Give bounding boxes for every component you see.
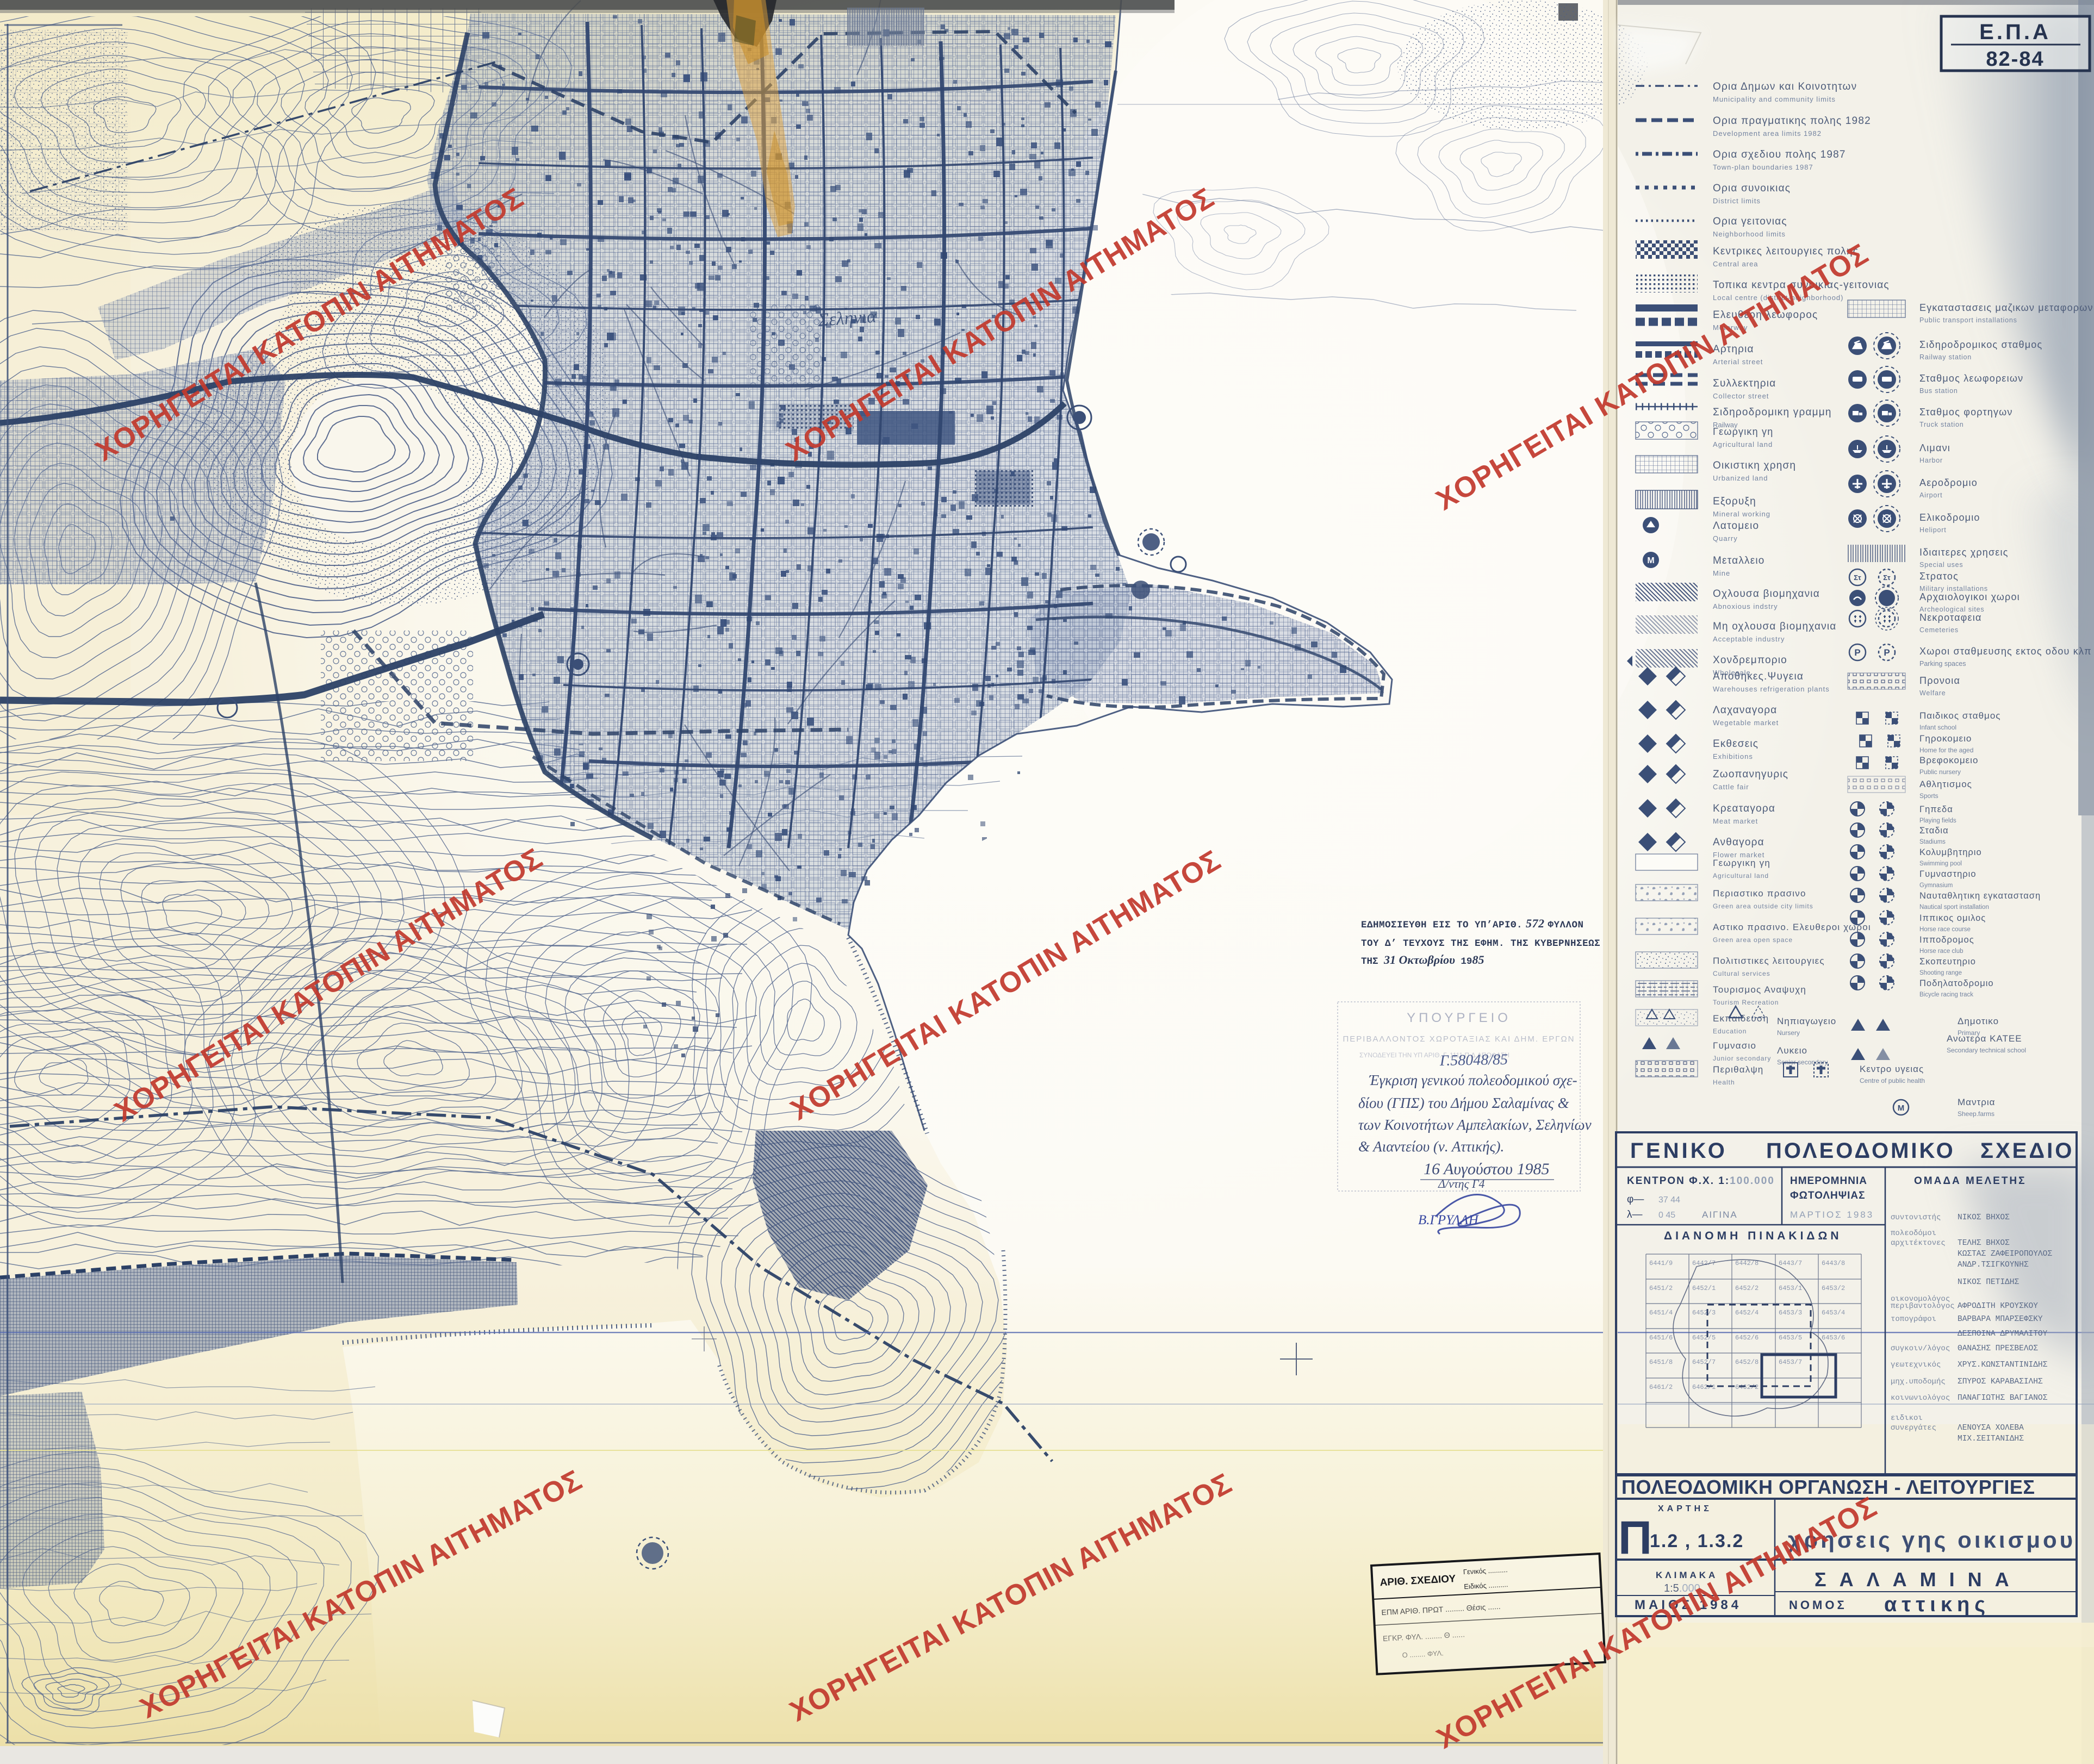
svg-text:Παιδικος σταθμος: Παιδικος σταθμος xyxy=(1919,710,2000,721)
svg-text:Acceptable industry: Acceptable industry xyxy=(1713,635,1785,643)
svg-text:Περιθαλψη: Περιθαλψη xyxy=(1713,1064,1763,1075)
svg-text:Στ: Στ xyxy=(1883,574,1891,582)
svg-text:Οικιστικη χρηση: Οικιστικη χρηση xyxy=(1713,460,1796,471)
svg-text:Municipality and community lim: Municipality and community limits xyxy=(1713,95,1836,103)
svg-text:Ιδιαιτερες χρησεις: Ιδιαιτερες χρησεις xyxy=(1919,547,2009,558)
svg-text:Development area limits 1982: Development area limits 1982 xyxy=(1713,129,1822,138)
svg-text:6461/2: 6461/2 xyxy=(1649,1383,1673,1391)
svg-text:M: M xyxy=(1647,556,1654,565)
svg-text:ΧΡΥΣ.ΚΩΝΣΤΑΝΤΙΝΙΔΗΣ: ΧΡΥΣ.ΚΩΝΣΤΑΝΤΙΝΙΔΗΣ xyxy=(1958,1361,2048,1369)
svg-text:Cattle fair: Cattle fair xyxy=(1713,783,1749,791)
svg-text:Σταθμος φορτηγων: Σταθμος φορτηγων xyxy=(1919,407,2013,417)
svg-text:Γυμνασιο: Γυμνασιο xyxy=(1713,1040,1756,1051)
svg-text:ΒΑΡΒΑΡΑ ΜΠΑΡΣΕΦΣΚΥ: ΒΑΡΒΑΡΑ ΜΠΑΡΣΕΦΣΚΥ xyxy=(1958,1315,2043,1324)
svg-text:Νεκροταφεια: Νεκροταφεια xyxy=(1919,612,1982,623)
svg-text:6452/6: 6452/6 xyxy=(1735,1334,1759,1342)
svg-text:Heliport: Heliport xyxy=(1919,526,1946,534)
svg-text:Σιδηροδρομικη γραμμη: Σιδηροδρομικη γραμμη xyxy=(1713,407,1832,418)
svg-text:ΑΝΔΡ.ΤΣΙΓΚΟΥΝΗΣ: ΑΝΔΡ.ΤΣΙΓΚΟΥΝΗΣ xyxy=(1958,1261,2029,1269)
svg-text:6453/3: 6453/3 xyxy=(1779,1309,1802,1317)
svg-text:ΜΙΧ.ΣΕΙΤΑΝΙΔΗΣ: ΜΙΧ.ΣΕΙΤΑΝΙΔΗΣ xyxy=(1958,1435,2024,1443)
svg-text:Truck station: Truck station xyxy=(1919,421,1964,428)
svg-text:Secondary technical school: Secondary technical school xyxy=(1947,1046,2026,1054)
svg-text:Green area open space: Green area open space xyxy=(1713,936,1793,944)
svg-text:Nautical sport installation: Nautical sport installation xyxy=(1919,904,1989,911)
svg-text:ΤΟΥ Δ’ ΤΕΥΧΟΥΣ ΤΗΣ ΕΦΗΜ. ΤΗΣ Κ: ΤΟΥ Δ’ ΤΕΥΧΟΥΣ ΤΗΣ ΕΦΗΜ. ΤΗΣ ΚΥΒΕΡΝΗΣΕΩΣ xyxy=(1361,938,1600,949)
svg-text:Agricultural land: Agricultural land xyxy=(1713,872,1769,880)
svg-text:Bus station: Bus station xyxy=(1919,387,1958,395)
svg-text:6453/4: 6453/4 xyxy=(1822,1309,1845,1317)
svg-text:Οχλουσα βιομηχανια: Οχλουσα βιομηχανια xyxy=(1713,588,1820,600)
svg-text:Λυκειο: Λυκειο xyxy=(1777,1045,1807,1056)
svg-text:ΝΙΚΟΣ ΠΕΤΙΔΗΣ: ΝΙΚΟΣ ΠΕΤΙΔΗΣ xyxy=(1958,1278,2019,1287)
svg-text:& Αιαντείου (ν. Αττικής).: & Αιαντείου (ν. Αττικής). xyxy=(1358,1138,1504,1155)
svg-text:Περιαστικο πρασινο: Περιαστικο πρασινο xyxy=(1713,888,1806,899)
svg-text:6462/2: 6462/2 xyxy=(1735,1383,1759,1391)
svg-text:Χωροι σταθμευσης εκτος οδου: Χωροι σταθμευσης εκτος οδου κλπ xyxy=(1919,646,2092,657)
svg-text:Γεωργικη γη: Γεωργικη γη xyxy=(1713,426,1773,437)
svg-text:συγκοιν/λόγος: συγκοιν/λόγος xyxy=(1891,1344,1950,1353)
svg-text:Αθλητισμος: Αθλητισμος xyxy=(1919,779,1972,789)
svg-text:Β.ΓΡΥΛΛΗ: Β.ΓΡΥΛΛΗ xyxy=(1418,1213,1480,1227)
svg-text:6462/1: 6462/1 xyxy=(1692,1383,1716,1391)
svg-text:Tourism Recreation: Tourism Recreation xyxy=(1713,999,1779,1006)
svg-text:Γηροκομειο: Γηροκομειο xyxy=(1919,733,1972,744)
svg-text:Τουρισμος Αναψυχη: Τουρισμος Αναψυχη xyxy=(1713,984,1806,995)
svg-text:ΑΙΓΙΝΑ: ΑΙΓΙΝΑ xyxy=(1702,1210,1738,1220)
svg-text:6443/7: 6443/7 xyxy=(1779,1260,1802,1267)
svg-text:Sheep.farms: Sheep.farms xyxy=(1958,1110,1994,1118)
svg-text:των Κοινοτήτων Αμπελακίων, Σελ: των Κοινοτήτων Αμπελακίων, Σεληνίων xyxy=(1358,1117,1592,1133)
svg-text:P: P xyxy=(1854,647,1860,658)
svg-text:Education: Education xyxy=(1713,1027,1747,1035)
svg-text:Ορια σχεδιου πολης 1987: Ορια σχεδιου πολης 1987 xyxy=(1713,149,1846,160)
svg-text:Στ: Στ xyxy=(1854,574,1861,582)
svg-text:Σιδηροδρομικος σταθμος: Σιδηροδρομικος σταθμος xyxy=(1919,339,2042,350)
svg-text:ΛΕΝΟΥΣΑ ΧΟΛΕΒΑ: ΛΕΝΟΥΣΑ ΧΟΛΕΒΑ xyxy=(1958,1424,2024,1432)
svg-text:Exhibitions: Exhibitions xyxy=(1713,752,1753,761)
svg-text:Λατομειο: Λατομειο xyxy=(1713,520,1759,532)
svg-text:Warehouses refrigeration plant: Warehouses refrigeration plants xyxy=(1713,685,1830,693)
svg-text:φ—: φ— xyxy=(1627,1194,1644,1205)
svg-text:Town-plan boundaries 1987: Town-plan boundaries 1987 xyxy=(1713,163,1813,171)
svg-text:6451/6: 6451/6 xyxy=(1649,1334,1673,1342)
svg-text:Special uses: Special uses xyxy=(1919,561,1963,569)
svg-text:Neighborhood limits: Neighborhood limits xyxy=(1713,230,1786,238)
svg-text:ΝΙΚΟΣ ΒΗΧΟΣ: ΝΙΚΟΣ ΒΗΧΟΣ xyxy=(1958,1213,2010,1222)
svg-text:Wegetable market: Wegetable market xyxy=(1713,719,1779,727)
svg-text:Δημοτικο: Δημοτικο xyxy=(1958,1016,1999,1026)
svg-text:Συλλεκτηρια: Συλλεκτηρια xyxy=(1713,378,1776,389)
svg-text:6452/1: 6452/1 xyxy=(1692,1285,1716,1292)
svg-text:Cemeteries: Cemeteries xyxy=(1919,626,1959,634)
svg-text:0 45: 0 45 xyxy=(1658,1211,1675,1220)
svg-text:ΗΜΕΡΟΜΗΝΙΑ: ΗΜΕΡΟΜΗΝΙΑ xyxy=(1790,1175,1867,1187)
svg-text:Parking spaces: Parking spaces xyxy=(1919,660,1966,668)
svg-text:Arterial street: Arterial street xyxy=(1713,358,1763,366)
svg-text:6451/2: 6451/2 xyxy=(1649,1285,1673,1292)
svg-text:Γεωργικη γη: Γεωργικη γη xyxy=(1713,858,1770,868)
svg-text:6452/4: 6452/4 xyxy=(1735,1309,1759,1317)
svg-text:Σεληνια: Σεληνια xyxy=(817,306,878,331)
svg-text:ΤΕΛΗΣ ΒΗΧΟΣ: ΤΕΛΗΣ ΒΗΧΟΣ xyxy=(1958,1239,2010,1248)
svg-text:Railway station: Railway station xyxy=(1919,353,1972,361)
svg-text:Agricultural land: Agricultural land xyxy=(1713,440,1773,448)
svg-text:ΔΙΑΝΟΜΗ ΠΙΝΑΚΙΔΩΝ: ΔΙΑΝΟΜΗ ΠΙΝΑΚΙΔΩΝ xyxy=(1664,1230,1842,1242)
svg-text:Home for the aged: Home for the aged xyxy=(1919,746,1973,754)
svg-text:ΓΕΝΙΚΟ: ΓΕΝΙΚΟ xyxy=(1630,1139,1728,1163)
svg-text:ΣΠΥΡΟΣ ΚΑΡΑΒΑΣΙΛΗΣ: ΣΠΥΡΟΣ ΚΑΡΑΒΑΣΙΛΗΣ xyxy=(1958,1377,2043,1386)
svg-text:Μαντρια: Μαντρια xyxy=(1958,1097,1995,1107)
svg-text:6453/1: 6453/1 xyxy=(1779,1285,1802,1292)
svg-text:Horse race course: Horse race course xyxy=(1919,926,1971,933)
svg-text:Σταθμος λεωφορειων: Σταθμος λεωφορειων xyxy=(1919,373,2023,384)
svg-text:Ε.Π.Α: Ε.Π.Α xyxy=(1979,20,2051,44)
svg-text:Αστικο πρασινο. Ελευθεροι χωρο: Αστικο πρασινο. Ελευθεροι χωροι xyxy=(1713,922,1871,932)
svg-text:Mineral working: Mineral working xyxy=(1713,510,1770,518)
svg-text:82-84: 82-84 xyxy=(1986,48,2044,71)
svg-text:Χονδρεμποριο: Χονδρεμποριο xyxy=(1713,655,1787,666)
svg-text:τοπογράφοι: τοπογράφοι xyxy=(1891,1315,1936,1324)
svg-text:6451/4: 6451/4 xyxy=(1649,1309,1673,1317)
svg-text:Ποδηλατοδρομιο: Ποδηλατοδρομιο xyxy=(1919,978,1994,988)
svg-text:Σταδια: Σταδια xyxy=(1919,826,1949,836)
svg-text:Ορια πραγματικης πολης 1982: Ορια πραγματικης πολης 1982 xyxy=(1713,115,1871,127)
svg-text:Harbor: Harbor xyxy=(1919,457,1943,464)
svg-text:Έγκριση γενικού πολεοδομικού σ: Έγκριση γενικού πολεοδομικού σχε- xyxy=(1369,1072,1577,1088)
svg-text:ΔΕΣΠΟΙΝΑ ΔΡΥΜΑΛΙΤΟΥ: ΔΕΣΠΟΙΝΑ ΔΡΥΜΑΛΙΤΟΥ xyxy=(1958,1330,2048,1338)
svg-text:ΟΜΑΔΑ ΜΕΛΕΤΗΣ: ΟΜΑΔΑ ΜΕΛΕΤΗΣ xyxy=(1914,1175,2027,1187)
svg-text:M: M xyxy=(1898,1104,1905,1113)
svg-text:Centre of public health: Centre of public health xyxy=(1860,1077,1925,1084)
svg-text:District limits: District limits xyxy=(1713,197,1761,205)
svg-text:γεωτεχνικός: γεωτεχνικός xyxy=(1891,1361,1941,1369)
svg-text:ΝΟΜΟΣ: ΝΟΜΟΣ xyxy=(1789,1598,1847,1612)
svg-text:συνεργάτες: συνεργάτες xyxy=(1891,1424,1936,1432)
svg-text:Δ/ντης Γ4: Δ/ντης Γ4 xyxy=(1438,1177,1485,1190)
svg-text:ΦΩΤΟΛΗΨΙΑΣ: ΦΩΤΟΛΗΨΙΑΣ xyxy=(1790,1190,1866,1201)
svg-text:Πολιτιστικες λειτουργιες: Πολιτιστικες λειτουργιες xyxy=(1713,956,1825,966)
svg-text:Εξορυξη: Εξορυξη xyxy=(1713,496,1756,507)
svg-text:συντονιστής: συντονιστής xyxy=(1891,1213,1941,1222)
svg-text:Ορια συνοικιας: Ορια συνοικιας xyxy=(1713,183,1791,194)
svg-text:Ναυταθλητικη εγκατασταση: Ναυταθλητικη εγκατασταση xyxy=(1919,891,2041,901)
svg-text:ΑΦΡΟΔΙΤΗ ΚΡΟΥΣΚΟΥ: ΑΦΡΟΔΙΤΗ ΚΡΟΥΣΚΟΥ xyxy=(1958,1302,2038,1311)
svg-text:Στρατος: Στρατος xyxy=(1919,571,1959,582)
svg-text:Stadiums: Stadiums xyxy=(1919,839,1946,845)
svg-text:Κεντρο υγειας: Κεντρο υγειας xyxy=(1860,1064,1924,1074)
svg-text:ΚΩΣΤΑΣ ΖΑΦΕΙΡΟΠΟΥΛΟΣ: ΚΩΣΤΑΣ ΖΑΦΕΙΡΟΠΟΥΛΟΣ xyxy=(1958,1250,2052,1258)
svg-text:Ανωτερα ΚΑΤΕΕ: Ανωτερα ΚΑΤΕΕ xyxy=(1947,1033,2022,1044)
svg-text:ΚΕΝΤΡΟΝ Φ.Χ. 1:100.000: ΚΕΝΤΡΟΝ Φ.Χ. 1:100.000 xyxy=(1627,1175,1775,1187)
svg-text:Γ.58048/85: Γ.58048/85 xyxy=(1439,1051,1508,1069)
svg-text:1.2 , 1.3.2: 1.2 , 1.3.2 xyxy=(1650,1531,1744,1551)
svg-text:Ορια γειτονιας: Ορια γειτονιας xyxy=(1713,216,1787,227)
svg-text:Shooting range: Shooting range xyxy=(1919,970,1962,976)
svg-text:Green area outside city limits: Green area outside city limits xyxy=(1713,902,1813,910)
svg-text:6453/2: 6453/2 xyxy=(1822,1285,1845,1292)
svg-text:Public transport installations: Public transport installations xyxy=(1919,316,2017,324)
svg-text:Airport: Airport xyxy=(1919,491,1942,499)
svg-text:Collector street: Collector street xyxy=(1713,392,1769,400)
svg-text:ΥΠΟΥΡΓΕΙΟ: ΥΠΟΥΡΓΕΙΟ xyxy=(1407,1011,1511,1025)
svg-text:6452/7: 6452/7 xyxy=(1692,1358,1716,1366)
svg-text:Βρεφοκομειο: Βρεφοκομειο xyxy=(1919,755,1978,765)
svg-text:Λαχαναγορα: Λαχαναγορα xyxy=(1713,705,1777,716)
svg-text:αττικης: αττικης xyxy=(1884,1593,1990,1616)
svg-text:μηχ.υποδομής: μηχ.υποδομής xyxy=(1891,1377,1946,1386)
svg-text:ΘΑΝΑΣΗΣ ΠΡΕΣΒΕΛΟΣ: ΘΑΝΑΣΗΣ ΠΡΕΣΒΕΛΟΣ xyxy=(1958,1344,2038,1353)
svg-text:ΣΧΕΔΙΟ: ΣΧΕΔΙΟ xyxy=(1980,1139,2074,1163)
svg-text:ΜΑΡΤΙΟΣ 1983: ΜΑΡΤΙΟΣ 1983 xyxy=(1790,1210,1874,1220)
svg-text:Γυμναστηριο: Γυμναστηριο xyxy=(1919,869,1977,879)
svg-text:ΠΟΛΕΟΔΟΜΙΚΗ ΟΡΓΑΝΩΣΗ - ΛΕΙΤΟΥ: ΠΟΛΕΟΔΟΜΙΚΗ ΟΡΓΑΝΩΣΗ - ΛΕΙΤΟΥΡΓΙΕΣ xyxy=(1621,1476,2035,1498)
svg-text:6443/8: 6443/8 xyxy=(1822,1260,1845,1267)
svg-text:Γηπεδα: Γηπεδα xyxy=(1919,805,1953,814)
svg-text:Health: Health xyxy=(1713,1079,1735,1086)
svg-text:Swimming pool: Swimming pool xyxy=(1919,861,1962,867)
svg-text:Π: Π xyxy=(1618,1512,1652,1564)
svg-text:ειδικοι: ειδικοι xyxy=(1891,1414,1923,1423)
svg-text:Ιππικος ομιλος: Ιππικος ομιλος xyxy=(1919,913,1986,923)
svg-text:ΠΑΝΑΓΙΩΤΗΣ ΒΑΓΙΑΝΟΣ: ΠΑΝΑΓΙΩΤΗΣ ΒΑΓΙΑΝΟΣ xyxy=(1958,1394,2048,1403)
svg-text:Ελικοδρομιο: Ελικοδρομιο xyxy=(1919,512,1980,523)
svg-text:Ανθαγορα: Ανθαγορα xyxy=(1713,837,1764,848)
svg-text:Horse race club: Horse race club xyxy=(1919,948,1963,955)
svg-text:Abnoxious indstry: Abnoxious indstry xyxy=(1713,602,1778,610)
svg-text:Κολυμβητηριο: Κολυμβητηριο xyxy=(1919,847,1982,857)
svg-text:Προνοια: Προνοια xyxy=(1919,675,1960,686)
svg-text:Mine: Mine xyxy=(1713,569,1730,577)
svg-text:6453/5: 6453/5 xyxy=(1779,1334,1802,1342)
svg-text:6452/3: 6452/3 xyxy=(1692,1309,1716,1317)
svg-text:Αρχαιολογικοι χωροι: Αρχαιολογικοι χωροι xyxy=(1919,591,2020,602)
svg-text:6453/7: 6453/7 xyxy=(1779,1358,1802,1366)
svg-text:αρχιτέκτονες: αρχιτέκτονες xyxy=(1891,1239,1946,1248)
svg-text:ΧΑΡΤΗΣ: ΧΑΡΤΗΣ xyxy=(1658,1504,1712,1513)
svg-text:Σκοπευτηριο: Σκοπευτηριο xyxy=(1919,957,1976,967)
svg-text:Infant school: Infant school xyxy=(1919,724,1956,731)
svg-text:6451/8: 6451/8 xyxy=(1649,1358,1673,1366)
svg-text:P: P xyxy=(1884,647,1890,658)
svg-text:16 Αυγούστου 1985: 16 Αυγούστου 1985 xyxy=(1424,1160,1549,1178)
svg-text:6441/9: 6441/9 xyxy=(1649,1260,1673,1267)
svg-text:Μεταλλειο: Μεταλλειο xyxy=(1713,555,1765,566)
svg-text:Central area: Central area xyxy=(1713,260,1759,268)
svg-text:Νηπιαγωγειο: Νηπιαγωγειο xyxy=(1777,1016,1836,1026)
svg-text:Αεροδρομιο: Αεροδρομιο xyxy=(1919,477,1978,488)
svg-text:Urbanized land: Urbanized land xyxy=(1713,474,1768,482)
svg-text:6452/5: 6452/5 xyxy=(1692,1334,1716,1342)
svg-text:Welfare: Welfare xyxy=(1919,689,1946,697)
svg-text:ΠΟΛΕΟΔΟΜΙΚΟ: ΠΟΛΕΟΔΟΜΙΚΟ xyxy=(1766,1139,1955,1163)
svg-text:Μη οχλουσα βιομηχανια: Μη οχλουσα βιομηχανια xyxy=(1713,621,1836,632)
svg-text:Εκθεσεις: Εκθεσεις xyxy=(1713,738,1759,750)
svg-text:Ιπποδρομος: Ιπποδρομος xyxy=(1919,935,1974,945)
svg-text:Bicycle racing track: Bicycle racing track xyxy=(1919,992,1973,998)
svg-text:6452/8: 6452/8 xyxy=(1735,1358,1759,1366)
svg-text:Playing fields: Playing fields xyxy=(1919,818,1956,824)
svg-text:37 44: 37 44 xyxy=(1658,1195,1680,1205)
svg-text:ΠΕΡΙΒΑΛΛΟΝΤΟΣ ΧΩΡΟΤΑΞΙΑΣ ΚΑΙ Δ: ΠΕΡΙΒΑΛΛΟΝΤΟΣ ΧΩΡΟΤΑΞΙΑΣ ΚΑΙ ΔΗΜ. ΕΡΓΩΝ xyxy=(1343,1034,1575,1044)
svg-text:Αποθηκες.Ψυγεια: Αποθηκες.Ψυγεια xyxy=(1713,671,1804,682)
svg-text:Quarry: Quarry xyxy=(1713,534,1738,543)
svg-text:Εγκαταστασεις μαζικων μεταφο: Εγκαταστασεις μαζικων μεταφορων xyxy=(1919,302,2093,313)
svg-text:Meat market: Meat market xyxy=(1713,817,1758,825)
svg-text:Cultural services: Cultural services xyxy=(1713,970,1770,977)
svg-text:6452/2: 6452/2 xyxy=(1735,1285,1759,1292)
svg-text:Public nursery: Public nursery xyxy=(1919,768,1961,776)
svg-text:Sports: Sports xyxy=(1919,792,1938,800)
svg-text:ΣΑΛΑΜΙΝΑ: ΣΑΛΑΜΙΝΑ xyxy=(1815,1568,2022,1591)
svg-text:δίου (ΓΠΣ) του Δήμου Σαλαμίνας: δίου (ΓΠΣ) του Δήμου Σαλαμίνας & xyxy=(1358,1095,1569,1111)
svg-text:Ορια Δημων και Κοινοτητων: Ορια Δημων και Κοινοτητων xyxy=(1713,81,1857,92)
svg-text:κοινωνιολόγος: κοινωνιολόγος xyxy=(1891,1394,1950,1403)
svg-text:6453/6: 6453/6 xyxy=(1822,1334,1845,1342)
svg-text:Junior secondary: Junior secondary xyxy=(1713,1055,1771,1062)
svg-text:Λιμανι: Λιμανι xyxy=(1919,442,1950,453)
svg-text:λ—: λ— xyxy=(1627,1209,1643,1220)
svg-text:Gymnasium: Gymnasium xyxy=(1919,882,1953,889)
svg-text:Nursery: Nursery xyxy=(1777,1029,1800,1037)
svg-text:περιβαντολόγος: περιβαντολόγος xyxy=(1891,1302,1955,1311)
svg-text:Ζωοπανηγυρις: Ζωοπανηγυρις xyxy=(1713,769,1788,780)
svg-text:πολεοδόμοι: πολεοδόμοι xyxy=(1891,1229,1936,1238)
svg-text:Κρεαταγορα: Κρεαταγορα xyxy=(1713,803,1775,814)
